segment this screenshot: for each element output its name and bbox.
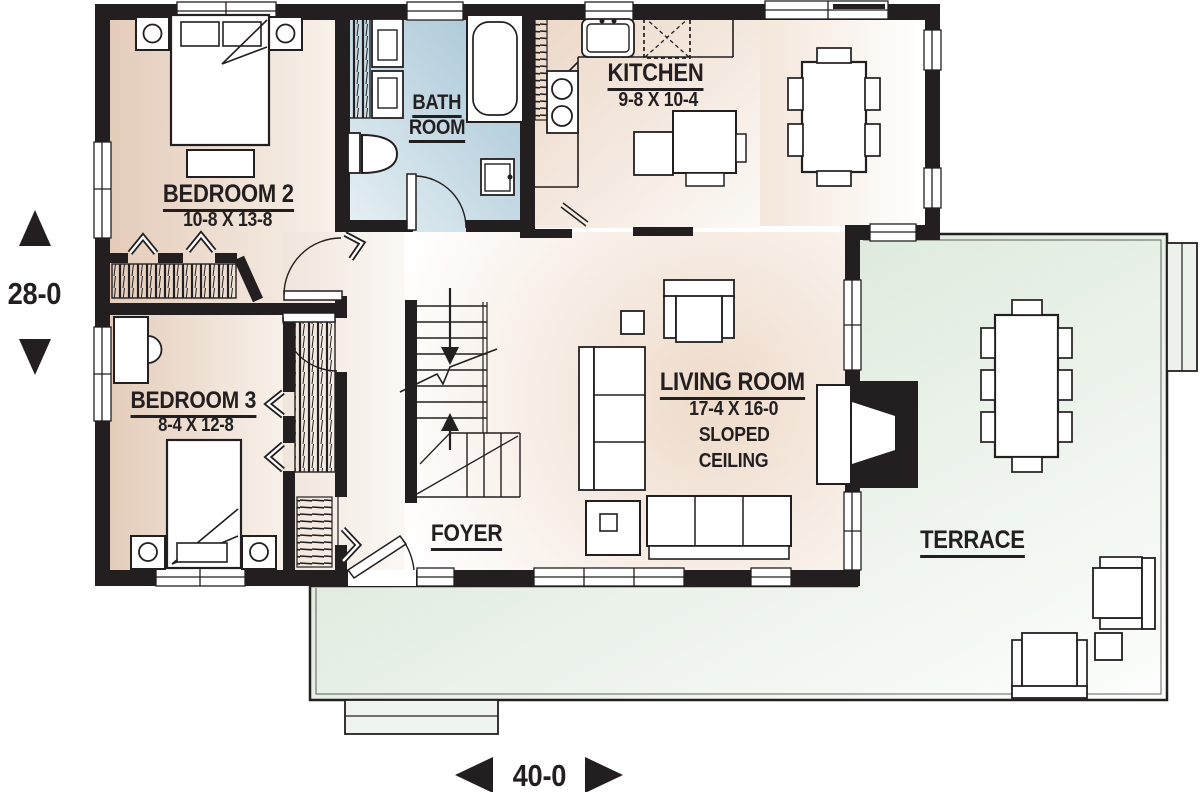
chair <box>1058 370 1072 400</box>
nightstand <box>269 17 302 50</box>
chair <box>1012 300 1042 315</box>
terrace-label: TERRACE <box>872 528 1072 558</box>
window <box>94 142 111 238</box>
sloped-ceiling-note-line1: SLOPED <box>634 425 834 445</box>
living-room-dims: 17-4 X 16-0 <box>634 399 834 419</box>
chair <box>1058 328 1072 358</box>
chair <box>817 48 851 63</box>
chair <box>817 171 851 186</box>
terrace-steps-right <box>1167 243 1197 371</box>
chair <box>981 328 995 358</box>
window <box>751 568 791 586</box>
floor-plan: BEDROOM 2 10-8 X 13-8 BATH ROOM KITCHEN … <box>0 0 1200 792</box>
bedroom3-label: BEDROOM 3 <box>93 389 293 418</box>
single-bed <box>167 440 241 568</box>
sloped-ceiling-note-line2: CEILING <box>634 451 834 471</box>
bath-sink <box>481 159 514 195</box>
patio-armchair <box>1012 633 1087 698</box>
bedroom3-closet <box>295 320 335 472</box>
kitchen-label: KITCHEN <box>556 61 756 91</box>
nightstand <box>242 536 276 569</box>
patio-armchair <box>1093 557 1155 629</box>
bathroom-label-line1: BATH <box>377 92 497 118</box>
chair <box>981 370 995 400</box>
linen-closet <box>297 497 332 567</box>
washer <box>372 19 403 67</box>
foyer-label: FOYER <box>367 522 567 551</box>
bedroom3-dims: 8-4 X 12-8 <box>96 416 296 435</box>
window <box>924 168 941 208</box>
chair <box>788 78 803 110</box>
window <box>844 492 861 570</box>
kitchen-dims: 9-8 X 10-4 <box>558 90 758 110</box>
window <box>407 2 463 20</box>
chair <box>865 78 880 110</box>
window <box>585 2 633 20</box>
chair <box>1058 412 1072 442</box>
window <box>534 568 684 586</box>
window <box>870 224 916 241</box>
window <box>156 568 245 586</box>
width-dimension: 40-0 <box>439 760 639 791</box>
nightstand <box>131 536 165 569</box>
nightstand <box>136 17 169 50</box>
kitchen-sink <box>582 19 634 58</box>
chair <box>981 412 995 442</box>
bathroom-label-line2: ROOM <box>377 117 497 143</box>
depth-arrow-up-icon <box>19 210 51 246</box>
armchair <box>664 280 734 342</box>
chair <box>865 124 880 156</box>
depth-dimension: 28-0 <box>0 278 134 309</box>
depth-arrow-down-icon <box>19 339 51 375</box>
living-room-label: LIVING ROOM <box>632 370 832 400</box>
terrace-table-set <box>981 300 1072 472</box>
dresser <box>187 150 254 177</box>
patio-side-table <box>1095 633 1122 660</box>
window <box>924 30 941 70</box>
double-bed <box>171 15 269 145</box>
window <box>417 568 454 586</box>
pantry-shelves <box>535 15 547 120</box>
bedroom2-dims: 10-8 X 13-8 <box>128 210 328 230</box>
dining-table <box>802 62 866 172</box>
window <box>765 1 888 19</box>
sofa <box>647 496 791 559</box>
chair <box>788 124 803 156</box>
bedroom2-label: BEDROOM 2 <box>128 182 328 212</box>
side-table <box>621 311 644 334</box>
coffee-table <box>586 501 640 555</box>
window <box>844 280 861 370</box>
deck-steps-bottom <box>345 700 498 734</box>
louvered-unit <box>344 16 370 118</box>
dining-set <box>788 48 880 186</box>
chair <box>1012 457 1042 472</box>
